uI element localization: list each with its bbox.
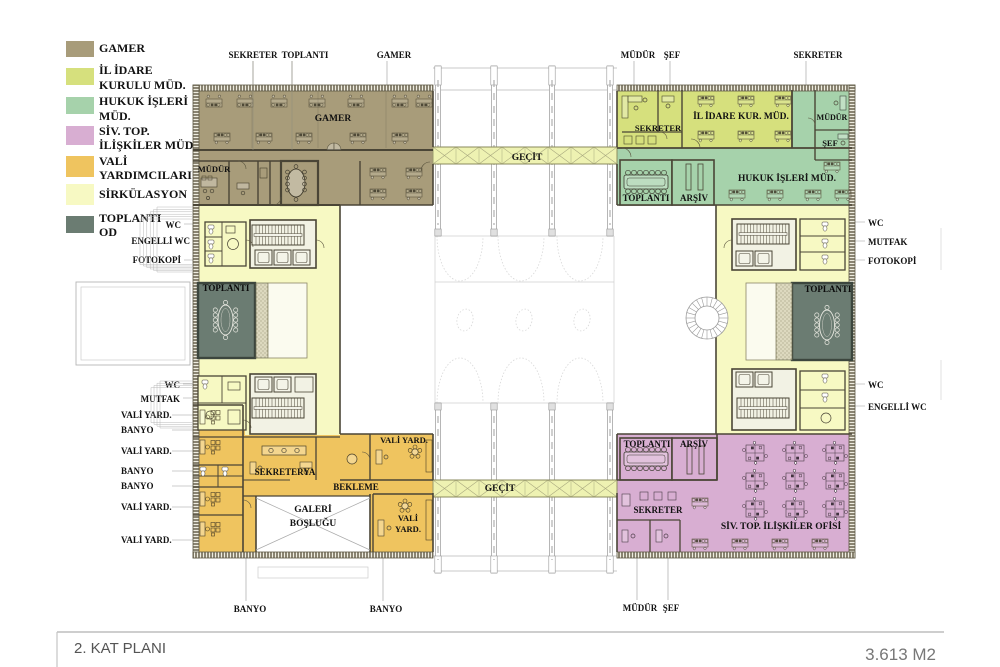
svg-text:YARDIMCILARI: YARDIMCILARI xyxy=(99,168,192,182)
svg-text:BANYO: BANYO xyxy=(121,425,154,435)
svg-text:MÜDÜR: MÜDÜR xyxy=(623,603,658,613)
svg-text:VALİ: VALİ xyxy=(99,154,128,168)
svg-text:BEKLEME: BEKLEME xyxy=(333,482,379,492)
svg-text:GEÇİT: GEÇİT xyxy=(512,151,543,163)
svg-text:SEKRETER: SEKRETER xyxy=(793,50,843,60)
svg-text:İLİŞKİLER MÜD.: İLİŞKİLER MÜD. xyxy=(99,138,196,152)
svg-text:BANYO: BANYO xyxy=(121,466,154,476)
svg-text:SEKRETERYA: SEKRETERYA xyxy=(255,467,316,477)
svg-text:MÜD.: MÜD. xyxy=(99,109,131,123)
svg-text:VALİ YARD.: VALİ YARD. xyxy=(121,535,172,545)
svg-text:2. KAT PLANI: 2. KAT PLANI xyxy=(74,640,166,657)
svg-text:OD: OD xyxy=(99,225,117,239)
svg-text:TOPLANTI: TOPLANTI xyxy=(624,439,671,449)
svg-text:MÜDÜR: MÜDÜR xyxy=(198,164,231,174)
svg-text:BANYO: BANYO xyxy=(370,604,403,614)
svg-text:İL İDARE: İL İDARE xyxy=(99,63,153,77)
svg-text:HUKUK İŞLERİ: HUKUK İŞLERİ xyxy=(99,94,188,108)
svg-text:VALİ YARD.: VALİ YARD. xyxy=(121,446,172,456)
svg-text:WC: WC xyxy=(166,220,182,230)
svg-text:YARD.: YARD. xyxy=(395,524,421,534)
svg-text:SEKRETER: SEKRETER xyxy=(635,123,682,133)
svg-text:GEÇİT: GEÇİT xyxy=(485,482,516,494)
svg-text:3.613 M2: 3.613 M2 xyxy=(865,645,936,664)
svg-text:TOPLANTI: TOPLANTI xyxy=(282,50,329,60)
svg-text:ARŞİV: ARŞİV xyxy=(680,193,709,203)
svg-text:WC: WC xyxy=(868,218,884,228)
svg-text:WC: WC xyxy=(165,380,181,390)
svg-text:TOPLANTI: TOPLANTI xyxy=(203,283,250,293)
svg-text:MÜDÜR: MÜDÜR xyxy=(817,113,848,122)
svg-text:VALİ YARD.: VALİ YARD. xyxy=(121,410,172,420)
svg-text:MUTFAK: MUTFAK xyxy=(868,237,907,247)
svg-text:GALERİ: GALERİ xyxy=(294,503,332,515)
svg-text:BANYO: BANYO xyxy=(121,481,154,491)
svg-text:VALİ: VALİ xyxy=(398,513,419,523)
svg-text:VALİ YARD.: VALİ YARD. xyxy=(380,435,428,445)
svg-text:SİRKÜLASYON: SİRKÜLASYON xyxy=(99,187,187,201)
svg-text:MÜDÜR: MÜDÜR xyxy=(621,50,656,60)
svg-text:ŞEF: ŞEF xyxy=(822,138,838,148)
svg-text:TOPLANTI: TOPLANTI xyxy=(99,211,162,225)
svg-text:GAMER: GAMER xyxy=(315,114,352,124)
svg-text:VALİ YARD.: VALİ YARD. xyxy=(121,502,172,512)
svg-text:TOPLANTI: TOPLANTI xyxy=(623,193,670,203)
svg-text:GAMER: GAMER xyxy=(377,50,412,60)
svg-text:FOTOKOPİ: FOTOKOPİ xyxy=(868,256,917,266)
svg-text:GAMER: GAMER xyxy=(99,41,145,55)
svg-text:SİV. TOP.: SİV. TOP. xyxy=(99,124,150,138)
svg-text:KURULU MÜD.: KURULU MÜD. xyxy=(99,78,186,92)
svg-text:ŞEF: ŞEF xyxy=(663,603,680,613)
svg-text:ARŞİV: ARŞİV xyxy=(680,439,709,449)
svg-text:SEKRETER: SEKRETER xyxy=(633,505,683,515)
svg-text:SEKRETER: SEKRETER xyxy=(228,50,278,60)
svg-text:MUTFAK: MUTFAK xyxy=(141,394,180,404)
svg-text:ENGELLİ WC: ENGELLİ WC xyxy=(868,402,927,412)
svg-text:WC: WC xyxy=(868,380,884,390)
svg-text:SİV. TOP. İLİŞKİLER OFİSİ: SİV. TOP. İLİŞKİLER OFİSİ xyxy=(721,520,842,532)
svg-text:BANYO: BANYO xyxy=(234,604,267,614)
svg-text:ŞEF: ŞEF xyxy=(664,50,681,60)
svg-text:TOPLANTI: TOPLANTI xyxy=(805,284,852,294)
